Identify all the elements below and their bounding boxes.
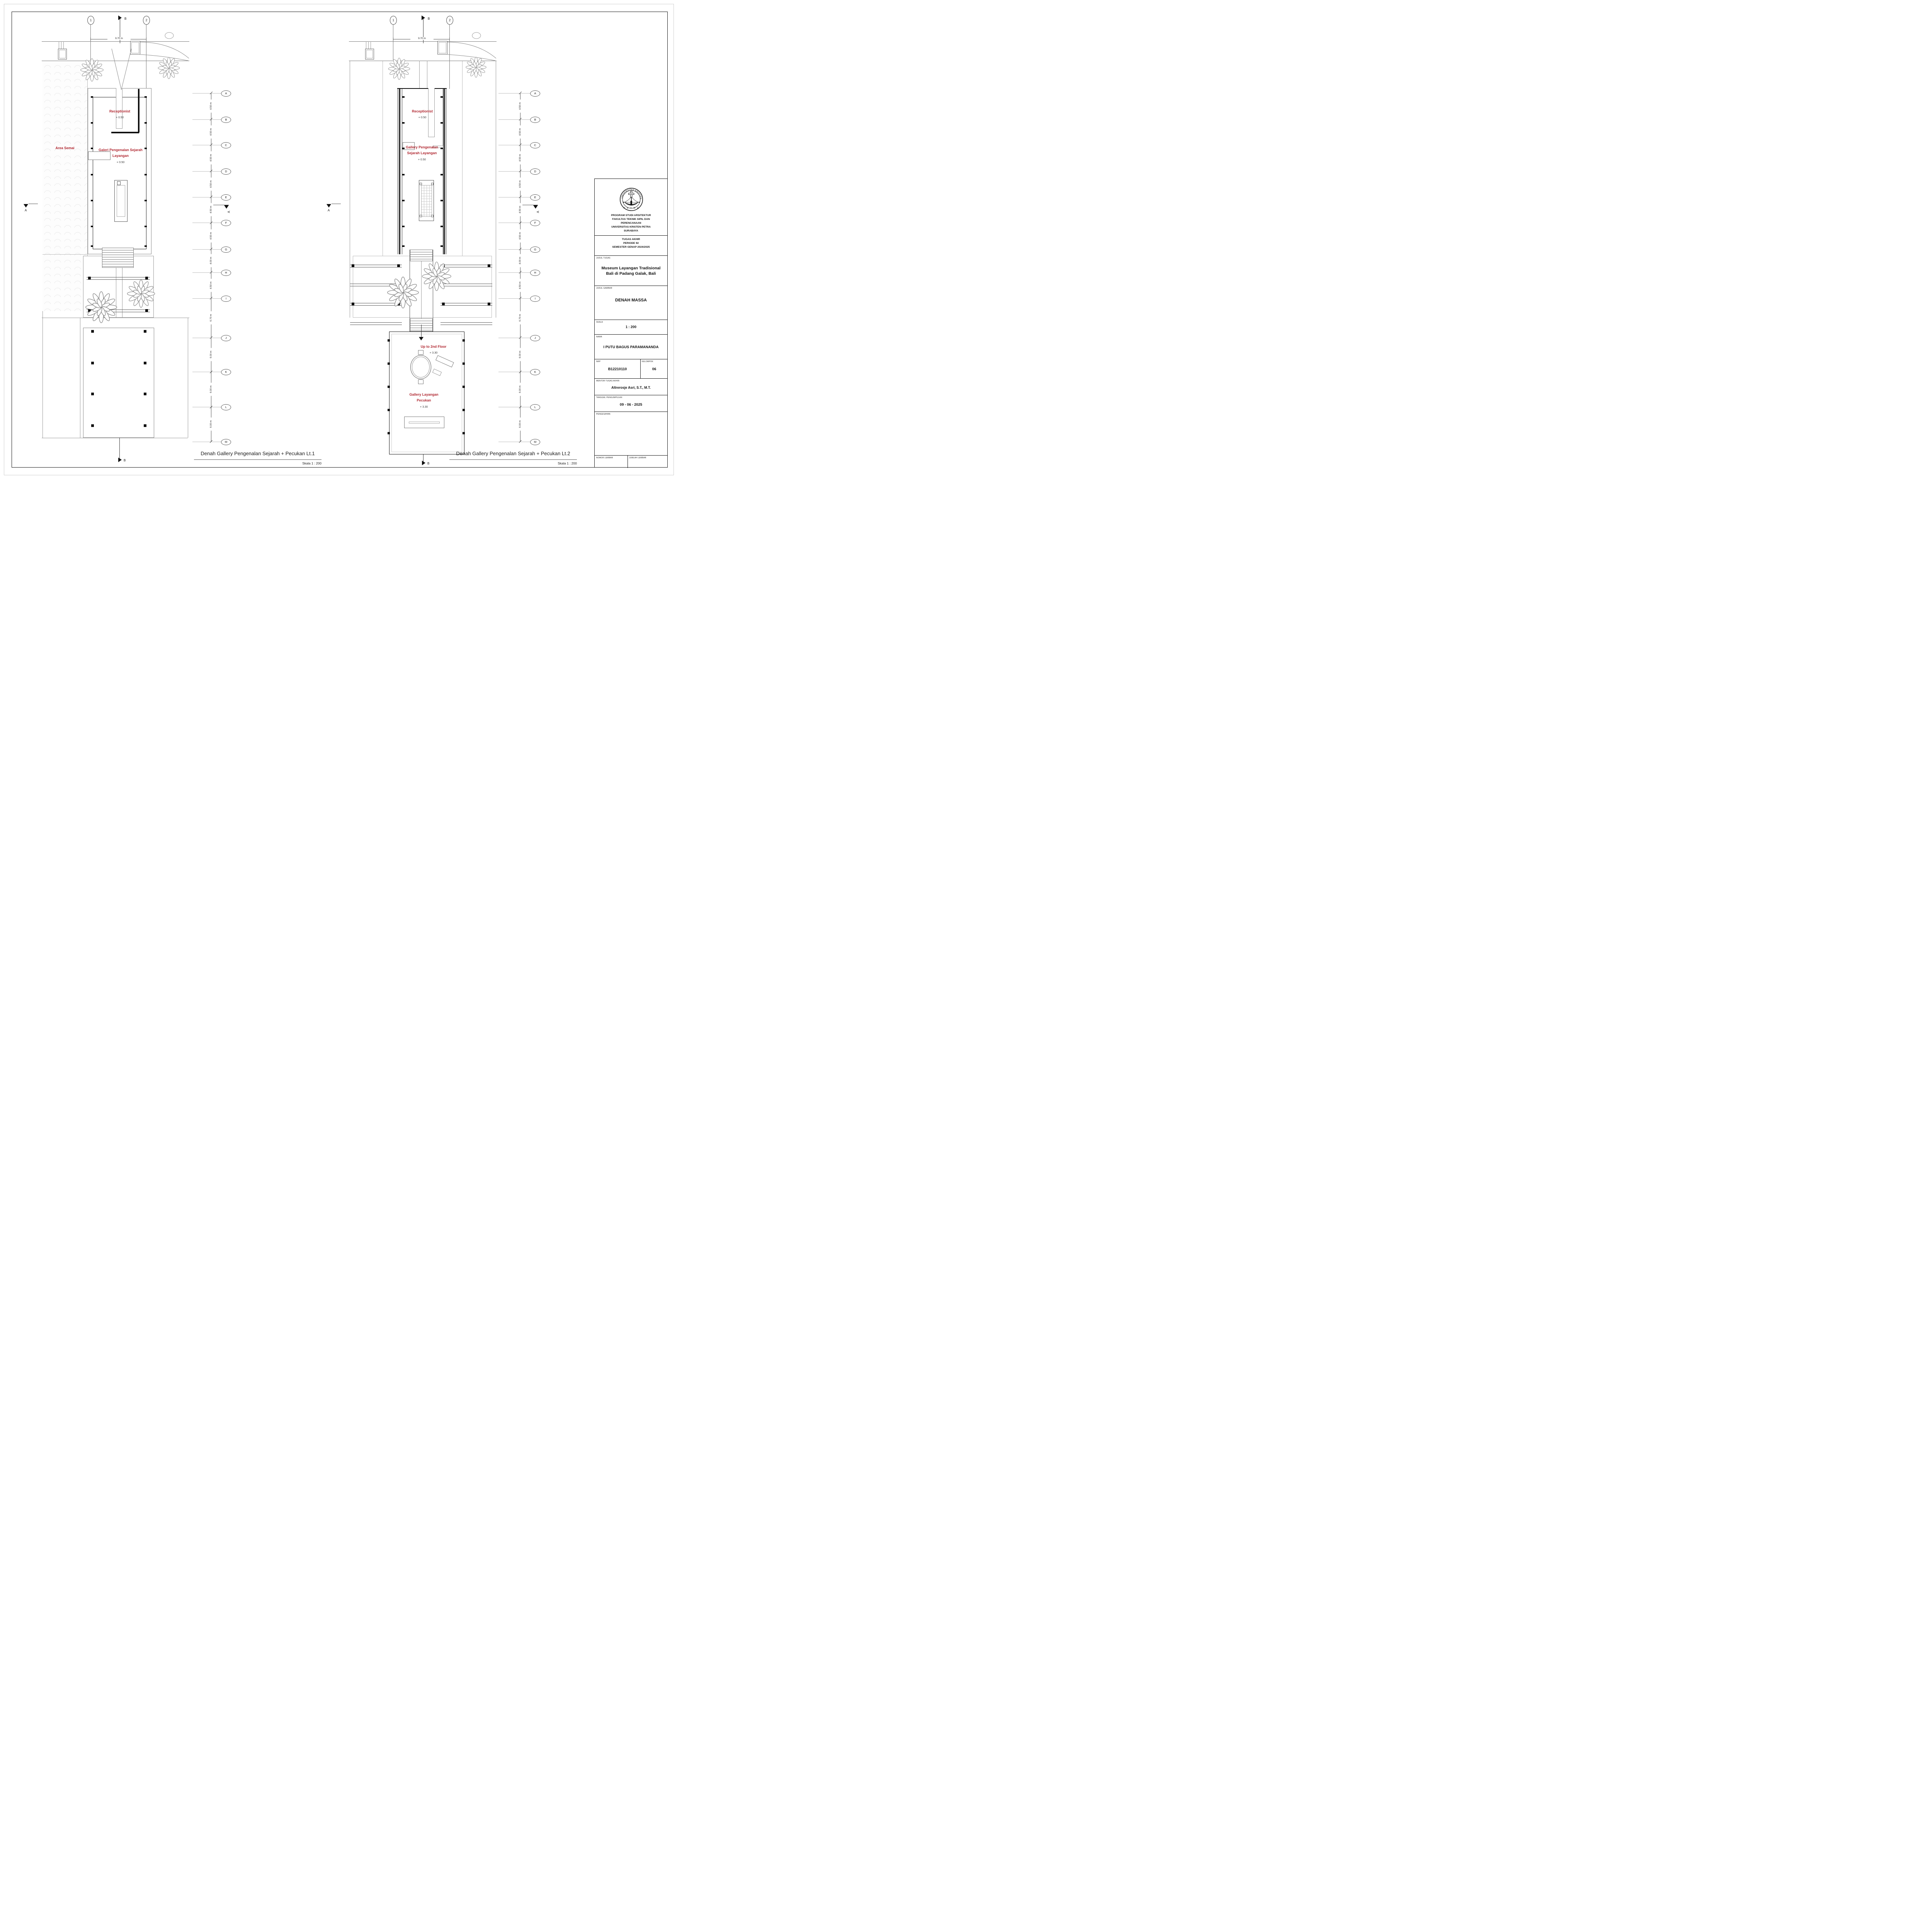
hall-column [388, 386, 390, 388]
section-label-a: A [536, 211, 540, 213]
column-tick [440, 174, 443, 175]
fence-post [366, 41, 366, 49]
grid-line-stub [498, 93, 530, 94]
dimension-label: 6.70 m [209, 311, 213, 325]
field-label-nama: NAMA [596, 336, 602, 338]
display-stand [418, 379, 423, 384]
table-leg [431, 215, 434, 217]
dimension-label: 6.00 m [519, 418, 522, 431]
display-pedestal [117, 181, 121, 185]
site-boundary [496, 61, 496, 318]
pavilion-plate [83, 328, 154, 438]
pergola-post [397, 303, 400, 305]
project-title-line: Bali di Padang Galak, Bali [595, 271, 667, 276]
field-label-nrp: NRP [596, 361, 600, 363]
zone-line [42, 318, 189, 318]
glazing-band [397, 88, 399, 254]
grid-line-stub [192, 442, 221, 442]
column-tick [145, 148, 147, 149]
grid-bubble-row: L [221, 404, 231, 410]
room-label-area-semai: Area Semai [55, 146, 74, 150]
gate-structure-inner [366, 50, 373, 58]
fence-post [63, 41, 64, 49]
column-tick [145, 226, 147, 227]
period-line: TUGAS AKHIR [595, 238, 667, 242]
dimension-label: 4.50 m [209, 177, 213, 191]
level-gallery: + 0.50 [418, 158, 426, 161]
grid-line-stub [498, 223, 530, 223]
pergola-post [397, 264, 400, 267]
dimension-label: 4.00 m [519, 254, 522, 267]
section-arrow-a-icon [327, 204, 331, 208]
grid-bubble-row: D [530, 168, 540, 175]
hall-column [463, 386, 465, 388]
terrace-line [43, 254, 88, 255]
section-label-a: A [25, 209, 27, 212]
grid-bubble-row: E [221, 194, 231, 201]
pergola-rail [87, 310, 150, 310]
fence-post [371, 41, 371, 49]
field-label-judul-tugas: JUDUL TUGAS [596, 257, 611, 259]
grid-bubble-row: H [530, 270, 540, 276]
column-tick [440, 200, 443, 201]
dimension-label: 4.50 m [519, 203, 522, 216]
grid-bubble-row: C [530, 142, 540, 148]
road-edge [42, 61, 189, 61]
dimension-label: 4.50 m [209, 279, 213, 292]
dimension-label: 4.50 m [519, 229, 522, 242]
room-label-pecukan-line2: Pecukan [417, 398, 431, 402]
column-tick [91, 122, 93, 124]
dimension-label: 4.50 m [519, 100, 522, 113]
dimension-label: 9.70 m [410, 37, 434, 40]
section-arrow-b-icon [422, 15, 425, 20]
field-label-judul-gambar: JUDUL GAMBAR [596, 287, 612, 289]
period-line: PERIODE 92 [595, 242, 667, 245]
room-label-up-to-2nd: Up to 2nd Floor [421, 345, 447, 349]
section-arrow-a-icon [24, 204, 28, 208]
dimension-tick [449, 37, 450, 41]
pergola-post [352, 264, 354, 267]
dimension-label: 4.50 m [209, 100, 213, 113]
grid-bubble-row: F [221, 220, 231, 226]
pergola-rail [350, 303, 402, 303]
section-label-b: B [124, 17, 126, 20]
dimension-label: 4.50 m [519, 279, 522, 292]
grid-line-stub [498, 197, 530, 197]
university-line: SURABAYA [595, 229, 667, 233]
pergola-rail [350, 322, 402, 323]
grid-bubble-2: 2 [143, 16, 150, 25]
dimension-label: 4.50 m [209, 229, 213, 242]
field-label-nomor: NOMOR LEMBAR [596, 457, 613, 459]
section-arrow-b-icon [118, 15, 122, 20]
road-edge [349, 61, 497, 61]
grid-line-stub [498, 249, 530, 250]
pergola-post [352, 303, 354, 305]
grid-bubble-row: A [221, 90, 231, 97]
hall-column [463, 339, 465, 342]
path-edge [122, 268, 122, 318]
display-table-inner [117, 185, 125, 217]
drawing-title: DENAH MASSA [595, 298, 667, 303]
grid-line-stub [192, 171, 221, 172]
grid-line-stub [192, 223, 221, 223]
dimension-label: 6.00 m [209, 418, 213, 431]
pergola-rail [440, 265, 492, 265]
pavilion-column [144, 330, 146, 333]
caption-lt2: Denah Gallery Pengenalan Sejarah + Pecuk… [436, 451, 590, 456]
road-edge [349, 41, 497, 42]
gate-structure-inner [59, 50, 66, 58]
zone-line [80, 318, 80, 438]
field-label-jumlah: JUMLAH LEMBAR [629, 457, 646, 459]
hall-column [388, 362, 390, 365]
gate-structure-inner [131, 42, 139, 53]
column-tick [91, 148, 93, 149]
university-line: PROGRAM STUDI ARSITEKTUR [595, 214, 667, 218]
section-label-b: B [427, 462, 429, 465]
cell-divider [628, 455, 628, 468]
hall-column [388, 409, 390, 411]
wall-face [443, 88, 443, 254]
grid-bubble-row: B [221, 117, 231, 123]
logo-petra-text: P E T R A [624, 207, 639, 209]
wall-poche [111, 132, 139, 133]
field-label-tanggal: TANGGAL PENGUMPULAN [596, 396, 622, 399]
hall-column [463, 432, 465, 434]
pergola-post [145, 277, 148, 279]
pavilion-column [144, 424, 146, 427]
grid-bubble-row: J [530, 335, 540, 341]
fence-post [61, 41, 61, 49]
pergola-post [88, 309, 91, 312]
pergola-rail [440, 267, 492, 267]
column-tick [91, 226, 93, 227]
mentor-name: Altrerosje Asri, S.T., M.T. [595, 386, 667, 390]
drawing-sheet: 9.70 m 1 2 B Receptionist + 0.50 Galeri … [0, 0, 678, 479]
section-label-b: B [428, 17, 430, 20]
hall-column [463, 409, 465, 411]
column-tick [440, 148, 443, 149]
university-line: UNIVERSITAS KRISTEN PETRA [595, 225, 667, 229]
grid-line-stub [192, 372, 221, 372]
wall-poche [444, 88, 445, 254]
column-tick [145, 174, 147, 175]
column-tick [145, 122, 147, 124]
column-tick [402, 200, 405, 201]
section-arrow-a-icon [224, 205, 229, 209]
area-semai-hatch [43, 61, 88, 311]
display-table-grid [421, 185, 432, 217]
pavilion-column [144, 362, 146, 364]
grid-line-stub [498, 407, 530, 407]
kelompok-value: 06 [640, 367, 668, 371]
pavilion-column [91, 362, 94, 364]
grid-line-stub [192, 407, 221, 407]
section-label-a: A [227, 211, 231, 213]
room-label-receptionist-lt2: Receptionist [412, 109, 433, 113]
project-title: Museum Layangan Tradisional Bali di Pada… [595, 265, 667, 276]
pergola-rail [350, 267, 402, 267]
column-tick [91, 174, 93, 175]
column-tick [440, 226, 443, 227]
pergola-rail [350, 286, 402, 286]
dimension-label: 4.50 m [519, 177, 522, 191]
grid-line-stub [498, 171, 530, 172]
stair-corridor [433, 250, 433, 332]
dimension-label: 4.00 m [209, 254, 213, 267]
pergola-rail [440, 322, 492, 323]
column-tick [145, 245, 147, 247]
column-tick [440, 96, 443, 98]
university-logo: UNIVERSITAS KRISTEN P E T R A [619, 187, 643, 211]
grid-bubble-row: F [530, 220, 540, 226]
dimension-label: 4.50 m [209, 126, 213, 139]
grid-bubble-row: J [221, 335, 231, 341]
grid-line-stub [192, 119, 221, 120]
stairs [410, 250, 433, 261]
pergola-rail [350, 284, 402, 284]
grid-bubble-row: I [221, 296, 231, 302]
level-receptionist-lt1: + 0.50 [116, 116, 124, 119]
scale-value: 1 : 200 [595, 325, 667, 329]
dimension-label: 4.50 m [519, 126, 522, 139]
level-receptionist-lt2: + 0.50 [418, 116, 426, 119]
wall-face [402, 88, 402, 254]
column-tick [402, 174, 405, 175]
column-tick [91, 200, 93, 201]
grid-line-stub [498, 119, 530, 120]
bridge-edge [427, 61, 427, 88]
pergola-post [442, 303, 445, 305]
column-tick [145, 96, 147, 98]
dimension-label: 4.50 m [209, 151, 213, 165]
pergola-rail [350, 325, 402, 325]
grid-bubble-2: 2 [446, 16, 453, 25]
zone-line [42, 438, 188, 438]
university-line: FAKULTAS TEKNIK SIPIL DAN [595, 218, 667, 221]
level-up-to-2nd: + 3.30 [430, 351, 437, 354]
table-leg [420, 183, 422, 185]
pergola-post [88, 277, 91, 279]
fence-post [59, 41, 59, 49]
grid-bubble-row: G [530, 247, 540, 253]
road-edge [42, 41, 189, 42]
grid-line-stub [498, 442, 530, 442]
level-galeri: + 0.50 [117, 160, 124, 164]
table-leg [420, 215, 422, 217]
zone-line [188, 318, 188, 438]
pavilion-column [91, 330, 94, 333]
grid-line-stub [498, 272, 530, 273]
column-tick [91, 96, 93, 98]
period-block: TUGAS AKHIR PERIODE 92 SEMESTER GENAP 20… [595, 238, 667, 249]
table-leg [431, 183, 434, 185]
section-arrow-b-icon [118, 458, 122, 462]
pavilion-column [91, 393, 94, 395]
grid-line-stub [192, 298, 221, 299]
column-tick [145, 200, 147, 201]
grid-bubble-row: C [221, 142, 231, 148]
display-stand [418, 350, 423, 355]
room-label-gallery-line1: Gallery Pengenalan [406, 145, 438, 149]
grid-line-1 [90, 25, 91, 60]
field-label-skala: SKALA [596, 321, 603, 323]
pergola-rail [87, 277, 150, 277]
dimension-label: 4.50 m [209, 203, 213, 216]
field-label-pengesahan: PENGESAHAN [596, 413, 611, 415]
pergola-rail [87, 312, 150, 312]
grid-bubble-row: I [530, 296, 540, 302]
pergola-rail [440, 286, 492, 286]
submission-date: 09 - 06 - 2025 [595, 403, 667, 407]
grid-line-stub [498, 298, 530, 299]
column-tick [402, 226, 405, 227]
column-tick [440, 245, 443, 247]
grid-bubble-row: L [530, 404, 540, 410]
dimension-label: 6.00 m [519, 383, 522, 396]
pergola-rail [350, 265, 402, 265]
dimension-label: 6.00 m [209, 348, 213, 361]
dimension-label: 6.70 m [519, 311, 522, 325]
grid-line-stub [192, 249, 221, 250]
grid-line-stub [192, 338, 221, 338]
dimension-label: 4.50 m [519, 151, 522, 165]
column-tick [91, 245, 93, 247]
pergola-rail [440, 305, 492, 306]
nrp-value: B12210110 [595, 367, 640, 371]
gate-structure-inner [439, 42, 446, 53]
section-line-a [29, 204, 38, 204]
glazing-band [445, 88, 447, 254]
pergola-rail [87, 279, 150, 280]
pavilion-column [91, 424, 94, 427]
column-tick [402, 148, 405, 149]
grid-line-stub [498, 338, 530, 338]
grid-line-stub [192, 93, 221, 94]
section-label-b: B [124, 459, 126, 462]
period-line: SEMESTER GENAP 2024/2025 [595, 245, 667, 249]
grid-bubble-1: 1 [390, 16, 397, 25]
caption-underline [449, 459, 577, 460]
pergola-rail [440, 284, 492, 284]
section-arrow-b-icon [422, 461, 425, 465]
room-label-gallery-line2: Sejarah Layangan [407, 151, 437, 155]
caption-scale-lt1: Skala 1 : 200 [270, 461, 321, 465]
hall-column [463, 362, 465, 365]
project-title-line: Museum Layangan Tradisional [595, 265, 667, 271]
pavilion-column [144, 393, 146, 395]
grid-bubble-row: K [221, 369, 231, 375]
up-arrow-icon [419, 337, 423, 340]
grid-line-stub [498, 372, 530, 372]
grid-bubble-row: B [530, 117, 540, 123]
room-label-pecukan-line1: Gallery Layangan [409, 393, 438, 396]
grid-bubble-row: M [221, 439, 231, 445]
site-boundary [350, 61, 350, 318]
field-label-mentor: MENTOR TUGAS AKHIR [596, 380, 619, 382]
fence-post [368, 41, 369, 49]
university-name: PROGRAM STUDI ARSITEKTUR FAKULTAS TEKNIK… [595, 214, 667, 233]
dimension-tick [393, 37, 393, 41]
section-line-a [332, 204, 341, 204]
grid-line-stub [192, 272, 221, 273]
up-arrow-line [421, 325, 422, 338]
room-label-receptionist-lt1: Receptionist [109, 109, 130, 113]
wall-poche [138, 89, 139, 133]
pergola-post [145, 309, 148, 312]
round-display-inner [412, 357, 430, 378]
grid-bubble-row: M [530, 439, 540, 445]
wall-pier [116, 88, 122, 129]
level-pecukan: + 3.30 [420, 405, 428, 408]
student-name: I PUTU BAGUS PARAMANANDA [595, 345, 667, 349]
room-label-galeri-line1: Galeri Pengenalan Sejarah [99, 148, 143, 152]
section-arrow-a-icon [533, 205, 538, 209]
caption-lt1: Denah Gallery Pengenalan Sejarah + Pecuk… [180, 451, 335, 456]
grid-bubble-1: 1 [87, 16, 94, 25]
pergola-rail [350, 305, 402, 306]
pergola-post [442, 264, 445, 267]
hall-column [388, 432, 390, 434]
grid-line-1 [393, 25, 393, 60]
path-edge [116, 268, 116, 318]
column-tick [402, 96, 405, 98]
hall-column [388, 339, 390, 342]
dimension-label: 6.00 m [209, 383, 213, 396]
grid-bubble-row: H [221, 270, 231, 276]
display-case-inner [409, 422, 440, 424]
grid-line-stub [192, 197, 221, 197]
grid-bubble-row: G [221, 247, 231, 253]
grid-bubble-row: K [530, 369, 540, 375]
court-outline [353, 256, 492, 318]
stairs [102, 248, 134, 268]
dimension-tick [146, 37, 146, 41]
university-line: PERENCANAAN [595, 221, 667, 225]
room-label-galeri-line2: Layangan [112, 154, 129, 158]
pergola-post [488, 303, 490, 305]
section-label-a: A [328, 209, 330, 212]
wall-poche-top [397, 88, 447, 89]
wall-poche [399, 88, 400, 254]
dimension-tick [90, 37, 91, 41]
grid-line-stub [192, 145, 221, 145]
pergola-post [488, 264, 490, 267]
grid-line-2 [146, 25, 146, 89]
field-label-kelompok: KELOMPOK [642, 361, 653, 363]
grid-line-stub [498, 145, 530, 145]
pergola-rail [440, 303, 492, 303]
dimension-label: 9.70 m [107, 37, 131, 40]
grid-bubble-row: D [221, 168, 231, 175]
bridge-edge [419, 61, 420, 88]
pergola-rail [440, 325, 492, 325]
caption-underline [194, 459, 321, 460]
grid-bubble-row: E [530, 194, 540, 201]
caption-scale-lt2: Skala 1 : 200 [526, 461, 577, 465]
dimension-label: 6.00 m [519, 348, 522, 361]
column-tick [402, 122, 405, 124]
column-tick [402, 245, 405, 247]
title-block: UNIVERSITAS KRISTEN P E T R A PROGRAM ST… [594, 179, 668, 468]
grid-bubble-row: A [530, 90, 540, 97]
column-tick [440, 122, 443, 124]
reception-desk [88, 151, 111, 160]
grid-line-2 [449, 25, 450, 89]
